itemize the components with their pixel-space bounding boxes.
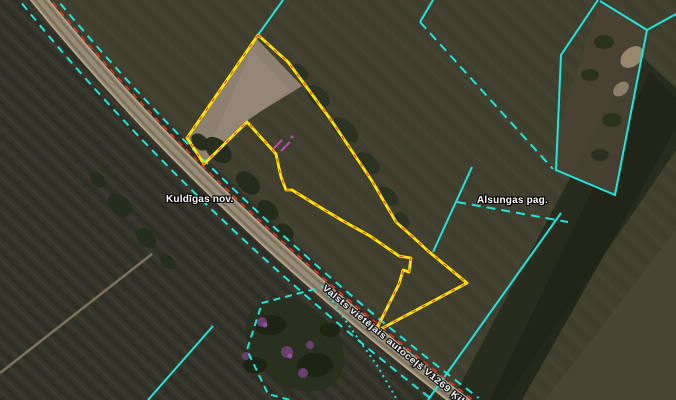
municipality-label: Kuldīgas nov. [166,194,233,205]
farm-tree [591,149,609,161]
purple-blob [298,368,308,378]
purple-blob [306,341,314,349]
farm-tree [602,113,622,127]
farm-tree [581,69,599,81]
aerial-map-layer: Valsts vietējais autoceļš V1269 Ķikuri [0,0,676,400]
purple-blob-bright [263,323,268,328]
farm-tree [594,35,614,49]
parish-label: Alsungas pag. [477,195,548,206]
tree-blob [320,323,340,337]
magenta-dot [291,136,294,139]
purple-blob-bright [288,354,293,359]
aerial-background [0,0,676,400]
map-canvas[interactable]: Valsts vietējais autoceļš V1269 Ķikuri K… [0,0,676,400]
